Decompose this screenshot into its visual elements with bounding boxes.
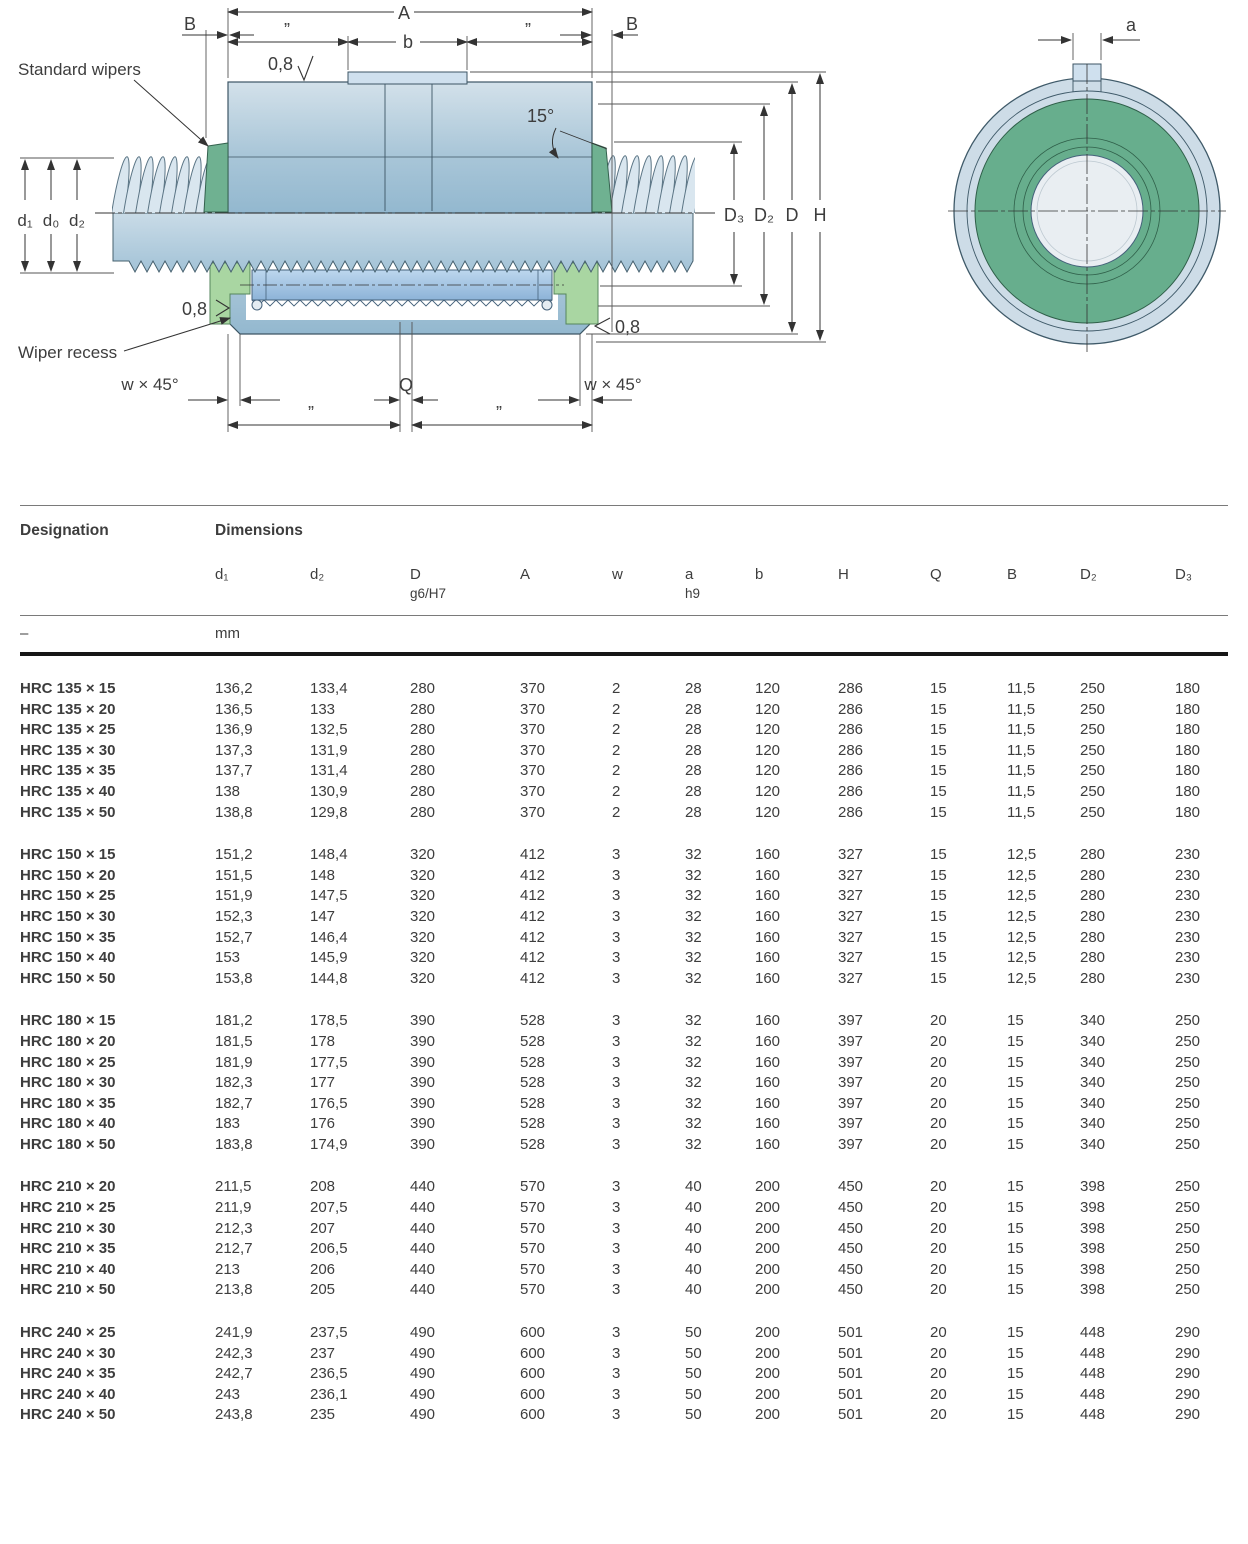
dim-w45-right-label: w × 45°: [583, 375, 641, 394]
table-row: HRC 180 × 25181,9177,5390528332160397201…: [20, 1053, 1228, 1074]
value-cell: 397: [838, 1011, 930, 1032]
value-cell: 440: [410, 1260, 520, 1281]
value-cell: 15: [930, 700, 1007, 721]
value-cell: 280: [1080, 928, 1175, 949]
value-cell: 250: [1175, 1053, 1228, 1074]
value-cell: 20: [930, 1094, 1007, 1115]
table-row: HRC 150 × 35152,7146,4320412332160327151…: [20, 928, 1228, 949]
value-cell: 200: [755, 1219, 838, 1240]
value-cell: 250: [1175, 1073, 1228, 1094]
column-header: A: [520, 565, 612, 616]
value-cell: 15: [1007, 1177, 1080, 1198]
value-cell: 236,5: [310, 1364, 410, 1385]
dim-A-label: A: [398, 3, 410, 23]
value-cell: 50: [685, 1385, 755, 1406]
value-cell: 327: [838, 948, 930, 969]
value-cell: 2: [612, 741, 685, 762]
dim-b-label: b: [403, 32, 413, 52]
value-cell: 3: [612, 1405, 685, 1426]
value-cell: 3: [612, 1364, 685, 1385]
value-cell: 3: [612, 1385, 685, 1406]
designation-cell: HRC 135 × 15: [20, 679, 215, 700]
value-cell: 3: [612, 886, 685, 907]
value-cell: 20: [930, 1177, 1007, 1198]
designation-cell: HRC 150 × 15: [20, 845, 215, 866]
value-cell: 32: [685, 886, 755, 907]
value-cell: 250: [1080, 720, 1175, 741]
value-cell: 3: [612, 1239, 685, 1260]
designation-cell: HRC 240 × 35: [20, 1364, 215, 1385]
value-cell: 241,9: [215, 1323, 310, 1344]
value-cell: 132,5: [310, 720, 410, 741]
value-cell: 448: [1080, 1344, 1175, 1365]
value-cell: 32: [685, 948, 755, 969]
value-cell: 32: [685, 866, 755, 887]
value-cell: 160: [755, 1073, 838, 1094]
value-cell: 153: [215, 948, 310, 969]
value-cell: 129,8: [310, 803, 410, 824]
column-header: ah9: [685, 565, 755, 616]
value-cell: 131,4: [310, 761, 410, 782]
value-cell: 178: [310, 1032, 410, 1053]
value-cell: 177: [310, 1073, 410, 1094]
standard-wipers-label: Standard wipers: [18, 60, 141, 79]
table-row: HRC 180 × 35182,7176,5390528332160397201…: [20, 1094, 1228, 1115]
column-header: Dg6/H7: [410, 565, 520, 616]
value-cell: 327: [838, 886, 930, 907]
value-cell: 20: [930, 1323, 1007, 1344]
group-spacer: [20, 823, 1228, 845]
value-cell: 570: [520, 1280, 612, 1301]
value-cell: 50: [685, 1364, 755, 1385]
designation-cell: HRC 180 × 40: [20, 1114, 215, 1135]
value-cell: 327: [838, 866, 930, 887]
value-cell: 152,3: [215, 907, 310, 928]
value-cell: 280: [410, 761, 520, 782]
value-cell: 15: [1007, 1344, 1080, 1365]
value-cell: 20: [930, 1280, 1007, 1301]
value-cell: 528: [520, 1011, 612, 1032]
value-cell: 501: [838, 1323, 930, 1344]
designation-cell: HRC 210 × 30: [20, 1219, 215, 1240]
value-cell: 450: [838, 1239, 930, 1260]
value-cell: 32: [685, 928, 755, 949]
value-cell: 2: [612, 761, 685, 782]
value-cell: 528: [520, 1032, 612, 1053]
value-cell: 32: [685, 1094, 755, 1115]
value-cell: 250: [1080, 782, 1175, 803]
designation-cell: HRC 150 × 25: [20, 886, 215, 907]
key-tab: [348, 72, 467, 84]
value-cell: 450: [838, 1198, 930, 1219]
value-cell: 15: [1007, 1280, 1080, 1301]
value-cell: 327: [838, 969, 930, 990]
value-cell: 28: [685, 782, 755, 803]
value-cell: 213: [215, 1260, 310, 1281]
value-cell: 28: [685, 720, 755, 741]
value-cell: 160: [755, 969, 838, 990]
value-cell: 501: [838, 1405, 930, 1426]
value-cell: 120: [755, 720, 838, 741]
value-cell: 490: [410, 1385, 520, 1406]
table-row: HRC 135 × 20136,51332803702281202861511,…: [20, 700, 1228, 721]
value-cell: 180: [1175, 803, 1228, 824]
value-cell: 528: [520, 1135, 612, 1156]
dim-w45-left-label: w × 45°: [120, 375, 178, 394]
dim-D-label: D: [786, 205, 799, 225]
empty-header-cell: [20, 565, 215, 616]
value-cell: 200: [755, 1385, 838, 1406]
group-spacer: [20, 1301, 1228, 1323]
value-cell: 50: [685, 1323, 755, 1344]
value-cell: 11,5: [1007, 761, 1080, 782]
value-cell: 182,3: [215, 1073, 310, 1094]
value-cell: 176,5: [310, 1094, 410, 1115]
value-cell: 20: [930, 1135, 1007, 1156]
value-cell: 3: [612, 1323, 685, 1344]
value-cell: 528: [520, 1114, 612, 1135]
value-cell: 15: [930, 761, 1007, 782]
ditto-mark: ”: [308, 403, 314, 423]
value-cell: 490: [410, 1323, 520, 1344]
value-cell: 280: [1080, 845, 1175, 866]
value-cell: 40: [685, 1219, 755, 1240]
column-header: H: [838, 565, 930, 616]
value-cell: 138,8: [215, 803, 310, 824]
value-cell: 15: [1007, 1385, 1080, 1406]
value-cell: 15: [1007, 1323, 1080, 1344]
designation-cell: HRC 210 × 35: [20, 1239, 215, 1260]
value-cell: 40: [685, 1239, 755, 1260]
value-cell: 15: [930, 741, 1007, 762]
value-cell: 32: [685, 1032, 755, 1053]
value-cell: 180: [1175, 782, 1228, 803]
value-cell: 448: [1080, 1385, 1175, 1406]
value-cell: 280: [410, 782, 520, 803]
value-cell: 320: [410, 969, 520, 990]
value-cell: 15: [930, 907, 1007, 928]
value-cell: 20: [930, 1073, 1007, 1094]
value-cell: 15: [930, 845, 1007, 866]
value-cell: 28: [685, 803, 755, 824]
value-cell: 3: [612, 928, 685, 949]
value-cell: 390: [410, 1114, 520, 1135]
value-cell: 397: [838, 1032, 930, 1053]
designation-cell: HRC 210 × 50: [20, 1280, 215, 1301]
value-cell: 501: [838, 1385, 930, 1406]
column-header: D₂: [1080, 565, 1175, 616]
value-cell: 286: [838, 803, 930, 824]
value-cell: 450: [838, 1260, 930, 1281]
roughness-label-bottom-right: 0,8: [615, 317, 640, 337]
value-cell: 3: [612, 1177, 685, 1198]
value-cell: 448: [1080, 1323, 1175, 1344]
value-cell: 160: [755, 1053, 838, 1074]
value-cell: 236,1: [310, 1385, 410, 1406]
value-cell: 340: [1080, 1073, 1175, 1094]
value-cell: 398: [1080, 1219, 1175, 1240]
value-cell: 3: [612, 1135, 685, 1156]
value-cell: 3: [612, 1260, 685, 1281]
value-cell: 11,5: [1007, 782, 1080, 803]
table-row: HRC 150 × 50153,8144,8320412332160327151…: [20, 969, 1228, 990]
value-cell: 398: [1080, 1177, 1175, 1198]
angle-15-label: 15°: [527, 106, 554, 126]
value-cell: 440: [410, 1280, 520, 1301]
value-cell: 2: [612, 720, 685, 741]
value-cell: 398: [1080, 1260, 1175, 1281]
value-cell: 15: [1007, 1094, 1080, 1115]
value-cell: 11,5: [1007, 741, 1080, 762]
value-cell: 137,3: [215, 741, 310, 762]
value-cell: 136,5: [215, 700, 310, 721]
value-cell: 183: [215, 1114, 310, 1135]
designation-cell: HRC 135 × 25: [20, 720, 215, 741]
table-row: HRC 180 × 20181,517839052833216039720153…: [20, 1032, 1228, 1053]
value-cell: 20: [930, 1114, 1007, 1135]
table-row: HRC 180 × 15181,2178,5390528332160397201…: [20, 1011, 1228, 1032]
value-cell: 398: [1080, 1198, 1175, 1219]
value-cell: 570: [520, 1239, 612, 1260]
dimensions-table: Designation Dimensions d₁d₂Dg6/H7Awah9bH…: [20, 505, 1228, 1426]
value-cell: 340: [1080, 1094, 1175, 1115]
table-row: HRC 150 × 40153145,93204123321603271512,…: [20, 948, 1228, 969]
value-cell: 160: [755, 1135, 838, 1156]
value-cell: 15: [1007, 1114, 1080, 1135]
value-cell: 250: [1175, 1114, 1228, 1135]
screw-shaft-band: [113, 213, 693, 272]
table-row: HRC 180 × 50183,8174,9390528332160397201…: [20, 1135, 1228, 1156]
value-cell: 412: [520, 928, 612, 949]
dimensions-section-label: Dimensions: [215, 506, 1228, 566]
value-cell: 200: [755, 1323, 838, 1344]
group-spacer: [20, 1155, 1228, 1177]
value-cell: 242,7: [215, 1364, 310, 1385]
value-cell: 2: [612, 700, 685, 721]
value-cell: 213,8: [215, 1280, 310, 1301]
value-cell: 370: [520, 720, 612, 741]
value-cell: 528: [520, 1053, 612, 1074]
designation-cell: HRC 210 × 25: [20, 1198, 215, 1219]
value-cell: 120: [755, 741, 838, 762]
units-mm-cell: mm: [215, 616, 1228, 655]
designation-cell: HRC 180 × 30: [20, 1073, 215, 1094]
value-cell: 160: [755, 907, 838, 928]
value-cell: 230: [1175, 948, 1228, 969]
table-row: HRC 135 × 25136,9132,5280370228120286151…: [20, 720, 1228, 741]
nut-top-body: [228, 82, 592, 213]
value-cell: 3: [612, 845, 685, 866]
value-cell: 501: [838, 1344, 930, 1365]
table-body: HRC 135 × 15136,2133,4280370228120286151…: [20, 654, 1228, 1426]
value-cell: 390: [410, 1094, 520, 1115]
designation-cell: HRC 150 × 30: [20, 907, 215, 928]
value-cell: 450: [838, 1219, 930, 1240]
value-cell: 412: [520, 969, 612, 990]
value-cell: 570: [520, 1198, 612, 1219]
value-cell: 160: [755, 866, 838, 887]
value-cell: 490: [410, 1344, 520, 1365]
value-cell: 2: [612, 803, 685, 824]
value-cell: 15: [1007, 1053, 1080, 1074]
value-cell: 207: [310, 1219, 410, 1240]
designation-cell: HRC 150 × 40: [20, 948, 215, 969]
group-spacer: [20, 989, 1228, 1011]
dimensions-table-section: Designation Dimensions d₁d₂Dg6/H7Awah9bH…: [20, 505, 1228, 1426]
end-view: [948, 64, 1226, 352]
value-cell: 3: [612, 1114, 685, 1135]
value-cell: 20: [930, 1344, 1007, 1365]
value-cell: 3: [612, 1011, 685, 1032]
value-cell: 176: [310, 1114, 410, 1135]
value-cell: 570: [520, 1260, 612, 1281]
table-row: HRC 135 × 35137,7131,4280370228120286151…: [20, 761, 1228, 782]
retaining-ring-left: [252, 300, 262, 310]
value-cell: 212,7: [215, 1239, 310, 1260]
value-cell: 327: [838, 845, 930, 866]
table-row: HRC 240 × 25241,9237,5490600350200501201…: [20, 1323, 1228, 1344]
value-cell: 440: [410, 1239, 520, 1260]
value-cell: 32: [685, 1011, 755, 1032]
value-cell: 600: [520, 1344, 612, 1365]
value-cell: 320: [410, 948, 520, 969]
value-cell: 148: [310, 866, 410, 887]
retaining-ring-right: [542, 300, 552, 310]
value-cell: 15: [930, 720, 1007, 741]
value-cell: 180: [1175, 679, 1228, 700]
value-cell: 160: [755, 928, 838, 949]
value-cell: 3: [612, 1073, 685, 1094]
value-cell: 397: [838, 1114, 930, 1135]
value-cell: 12,5: [1007, 948, 1080, 969]
value-cell: 147: [310, 907, 410, 928]
value-cell: 412: [520, 948, 612, 969]
dim-B-left-label: B: [184, 14, 196, 34]
table-row: HRC 150 × 15151,2148,4320412332160327151…: [20, 845, 1228, 866]
value-cell: 448: [1080, 1364, 1175, 1385]
value-cell: 370: [520, 803, 612, 824]
value-cell: 3: [612, 1219, 685, 1240]
value-cell: 3: [612, 1280, 685, 1301]
table-row: HRC 240 × 30242,323749060035020050120154…: [20, 1344, 1228, 1365]
value-cell: 286: [838, 761, 930, 782]
value-cell: 137,7: [215, 761, 310, 782]
value-cell: 390: [410, 1053, 520, 1074]
value-cell: 600: [520, 1323, 612, 1344]
value-cell: 280: [410, 679, 520, 700]
value-cell: 160: [755, 1094, 838, 1115]
value-cell: 280: [410, 700, 520, 721]
value-cell: 390: [410, 1011, 520, 1032]
value-cell: 180: [1175, 761, 1228, 782]
value-cell: 15: [930, 928, 1007, 949]
value-cell: 280: [410, 720, 520, 741]
value-cell: 250: [1175, 1177, 1228, 1198]
value-cell: 230: [1175, 866, 1228, 887]
table-row: HRC 240 × 50243,823549060035020050120154…: [20, 1405, 1228, 1426]
value-cell: 412: [520, 845, 612, 866]
designation-cell: HRC 240 × 40: [20, 1385, 215, 1406]
designation-section-label: Designation: [20, 506, 215, 566]
group-spacer: [20, 654, 1228, 679]
value-cell: 3: [612, 948, 685, 969]
value-cell: 160: [755, 1011, 838, 1032]
value-cell: 28: [685, 679, 755, 700]
value-cell: 200: [755, 1364, 838, 1385]
value-cell: 412: [520, 907, 612, 928]
value-cell: 200: [755, 1405, 838, 1426]
value-cell: 153,8: [215, 969, 310, 990]
value-cell: 280: [410, 803, 520, 824]
designation-cell: HRC 135 × 40: [20, 782, 215, 803]
value-cell: 183,8: [215, 1135, 310, 1156]
value-cell: 290: [1175, 1344, 1228, 1365]
table-row: HRC 150 × 25151,9147,5320412332160327151…: [20, 886, 1228, 907]
value-cell: 528: [520, 1073, 612, 1094]
value-cell: 182,7: [215, 1094, 310, 1115]
value-cell: 2: [612, 679, 685, 700]
value-cell: 320: [410, 907, 520, 928]
value-cell: 286: [838, 720, 930, 741]
value-cell: 280: [1080, 969, 1175, 990]
table-row: HRC 210 × 35212,7206,5440570340200450201…: [20, 1239, 1228, 1260]
value-cell: 40: [685, 1198, 755, 1219]
value-cell: 32: [685, 1073, 755, 1094]
table-row: HRC 150 × 20151,51483204123321603271512,…: [20, 866, 1228, 887]
value-cell: 370: [520, 741, 612, 762]
column-header: D₃: [1175, 565, 1228, 616]
designation-cell: HRC 150 × 20: [20, 866, 215, 887]
designation-cell: HRC 180 × 35: [20, 1094, 215, 1115]
value-cell: 32: [685, 1053, 755, 1074]
designation-cell: HRC 210 × 40: [20, 1260, 215, 1281]
value-cell: 3: [612, 1053, 685, 1074]
value-cell: 250: [1080, 679, 1175, 700]
value-cell: 212,3: [215, 1219, 310, 1240]
roughness-label-bottom-left: 0,8: [182, 299, 207, 319]
value-cell: 151,2: [215, 845, 310, 866]
value-cell: 397: [838, 1073, 930, 1094]
value-cell: 32: [685, 969, 755, 990]
value-cell: 200: [755, 1198, 838, 1219]
value-cell: 398: [1080, 1239, 1175, 1260]
value-cell: 250: [1175, 1011, 1228, 1032]
value-cell: 181,5: [215, 1032, 310, 1053]
roughness-label-top: 0,8: [268, 54, 293, 74]
value-cell: 3: [612, 907, 685, 928]
value-cell: 120: [755, 679, 838, 700]
designation-cell: HRC 210 × 20: [20, 1177, 215, 1198]
value-cell: 370: [520, 700, 612, 721]
table-row: HRC 150 × 30152,31473204123321603271512,…: [20, 907, 1228, 928]
designation-cell: HRC 135 × 50: [20, 803, 215, 824]
value-cell: 15: [930, 886, 1007, 907]
column-header: b: [755, 565, 838, 616]
value-cell: 32: [685, 1135, 755, 1156]
column-header-row: d₁d₂Dg6/H7Awah9bHQBD₂D₃: [20, 565, 1228, 616]
value-cell: 15: [1007, 1135, 1080, 1156]
value-cell: 211,5: [215, 1177, 310, 1198]
value-cell: 286: [838, 700, 930, 721]
dim-d0-label: d₀: [43, 211, 60, 230]
value-cell: 40: [685, 1280, 755, 1301]
value-cell: 600: [520, 1385, 612, 1406]
value-cell: 160: [755, 1032, 838, 1053]
value-cell: 327: [838, 907, 930, 928]
value-cell: 12,5: [1007, 928, 1080, 949]
value-cell: 390: [410, 1135, 520, 1156]
value-cell: 145,9: [310, 948, 410, 969]
